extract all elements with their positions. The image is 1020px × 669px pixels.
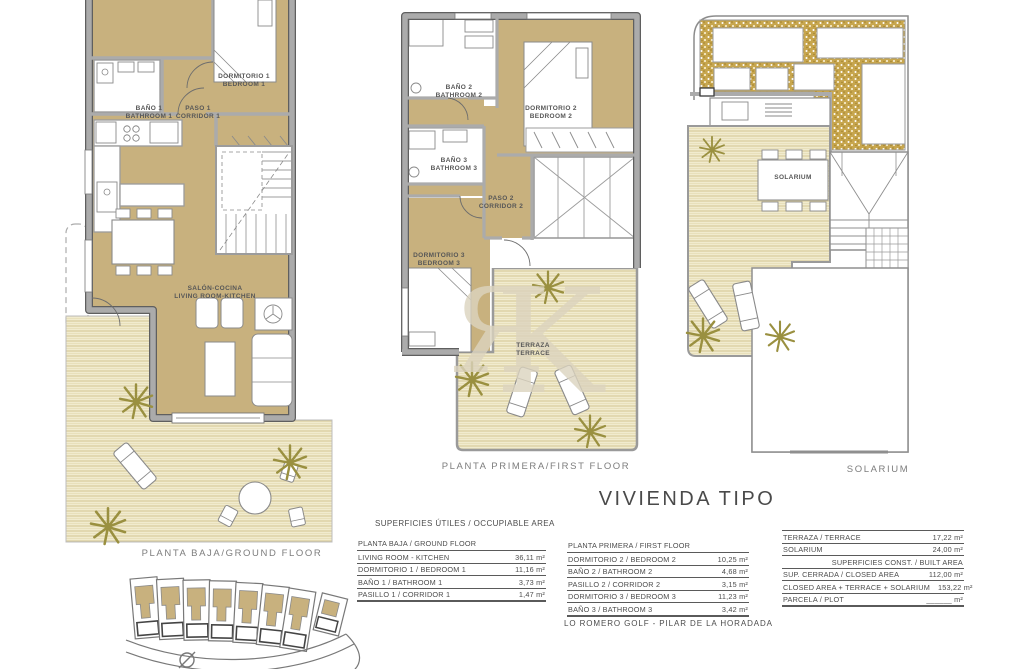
hall-floor <box>407 98 484 126</box>
useful-area-heading: SUPERFICIES ÚTILES / OCCUPIABLE AREA <box>375 519 555 528</box>
first-floor-table: PLANTA PRIMERA / FIRST FLOOR DORMITORIO … <box>567 540 749 617</box>
solarium-plan <box>687 16 908 452</box>
label-bedroom2: DORMITORIO 2BEDROOM 2 <box>525 105 577 122</box>
table-row: LIVING ROOM - KITCHEN36,11 m² <box>357 551 546 564</box>
built-area-subheader: SUPERFICIES CONST. / BUILT AREA <box>782 556 964 569</box>
caption-first-floor: PLANTA PRIMERA/FIRST FLOOR <box>442 461 631 472</box>
caption-solarium: SOLARIUM <box>847 464 909 475</box>
label-bathroom1: BAÑO 1BATHROOM 1 <box>126 105 173 122</box>
table-row: TERRAZA / TERRACE17,22 m² <box>782 531 964 544</box>
label-bedroom1: DORMITORIO 1BEDROOM 1 <box>218 73 270 90</box>
table-header: PLANTA PRIMERA / FIRST FLOOR <box>567 540 749 553</box>
compass-icon <box>179 652 195 668</box>
table-row: DORMITORIO 3 / BEDROOM 311,23 m² <box>567 591 749 604</box>
lower-roof-area <box>752 268 908 452</box>
label-bedroom3: DORMITORIO 3BEDROOM 3 <box>413 252 465 269</box>
wall-marker <box>700 88 714 96</box>
table-row: PARCELA / PLOT______ m² <box>782 594 964 608</box>
label-living-room: SALÓN-COCINALIVING ROOM-KITCHEN <box>174 285 255 302</box>
built-area-table: TERRAZA / TERRACE17,22 m² SOLARIUM24,00 … <box>782 530 964 607</box>
site-unit-end <box>313 593 347 636</box>
hatch-grid <box>866 228 908 268</box>
watermark-letter-k: K <box>495 258 606 427</box>
table-row: PASILLO 1 / CORRIDOR 11,47 m² <box>357 589 546 603</box>
floorplan-sheet: { "title": "VIVIENDA TIPO", "footer": "L… <box>0 0 1020 669</box>
table-row: SUP. CERRADA / CLOSED AREA112,00 m² <box>782 569 964 582</box>
site-unit <box>183 580 211 640</box>
label-bathroom2: BAÑO 2BATHROOM 2 <box>436 84 483 101</box>
caption-ground-floor: PLANTA BAJA/GROUND FLOOR <box>142 548 323 559</box>
ground-floor-table: PLANTA BAJA / GROUND FLOOR LIVING ROOM -… <box>357 538 546 602</box>
table-row: SOLARIUM24,00 m² <box>782 544 964 557</box>
label-terrace: TERRAZATERRACE <box>516 342 550 359</box>
table-row: CLOSED AREA + TERRACE + SOLARIUM153,22 m… <box>782 581 964 594</box>
window <box>455 13 491 19</box>
project-footer: LO ROMERO GOLF - PILAR DE LA HORADADA <box>564 619 773 628</box>
label-bathroom3: BAÑO 3BATHROOM 3 <box>431 157 478 174</box>
label-corridor2: PASO 2CORRIDOR 2 <box>479 195 523 212</box>
table-row: DORMITORIO 1 / BEDROOM 111,16 m² <box>357 564 546 577</box>
table-row: BAÑO 2 / BATHROOM 24,68 m² <box>567 566 749 579</box>
site-unit <box>157 578 187 639</box>
site-key-plan <box>126 577 360 669</box>
table-header: PLANTA BAJA / GROUND FLOOR <box>357 538 546 551</box>
window <box>527 13 611 19</box>
kitchenette <box>710 98 830 126</box>
window <box>85 240 92 292</box>
ground-floor-plan <box>66 0 332 544</box>
bed1 <box>214 0 276 82</box>
window <box>85 150 92 194</box>
bedroom2-closet <box>526 128 634 152</box>
table-row: BAÑO 1 / BATHROOM 13,73 m² <box>357 576 546 589</box>
table-row: DORMITORIO 2 / BEDROOM 210,25 m² <box>567 553 749 566</box>
stairs-first <box>534 157 635 238</box>
table-row: PASILLO 2 / CORRIDOR 23,15 m² <box>567 578 749 591</box>
label-corridor1: PASO 1CORRIDOR 1 <box>176 105 220 122</box>
hall-floor2 <box>407 184 484 196</box>
stairs-ground <box>216 146 292 254</box>
label-solarium: SOLARIUM <box>774 174 811 182</box>
bathroom3-room <box>407 128 484 184</box>
site-unit <box>208 581 236 641</box>
table-row: BAÑO 3 / BATHROOM 33,42 m² <box>567 603 749 617</box>
page-title: VIVIENDA TIPO <box>599 488 776 511</box>
window <box>402 288 408 336</box>
